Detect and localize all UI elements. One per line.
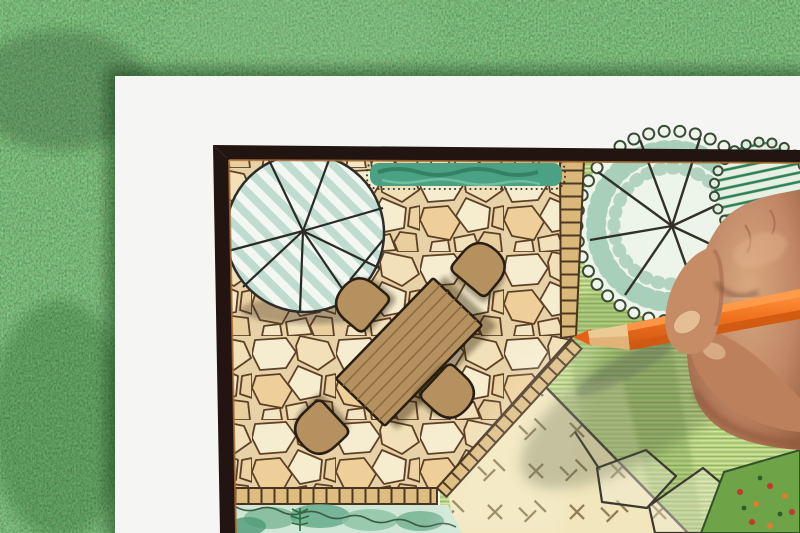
plant-border <box>230 504 462 533</box>
photo-scene <box>0 0 800 533</box>
scene-canvas <box>0 0 800 533</box>
hedge-strip <box>367 160 565 189</box>
